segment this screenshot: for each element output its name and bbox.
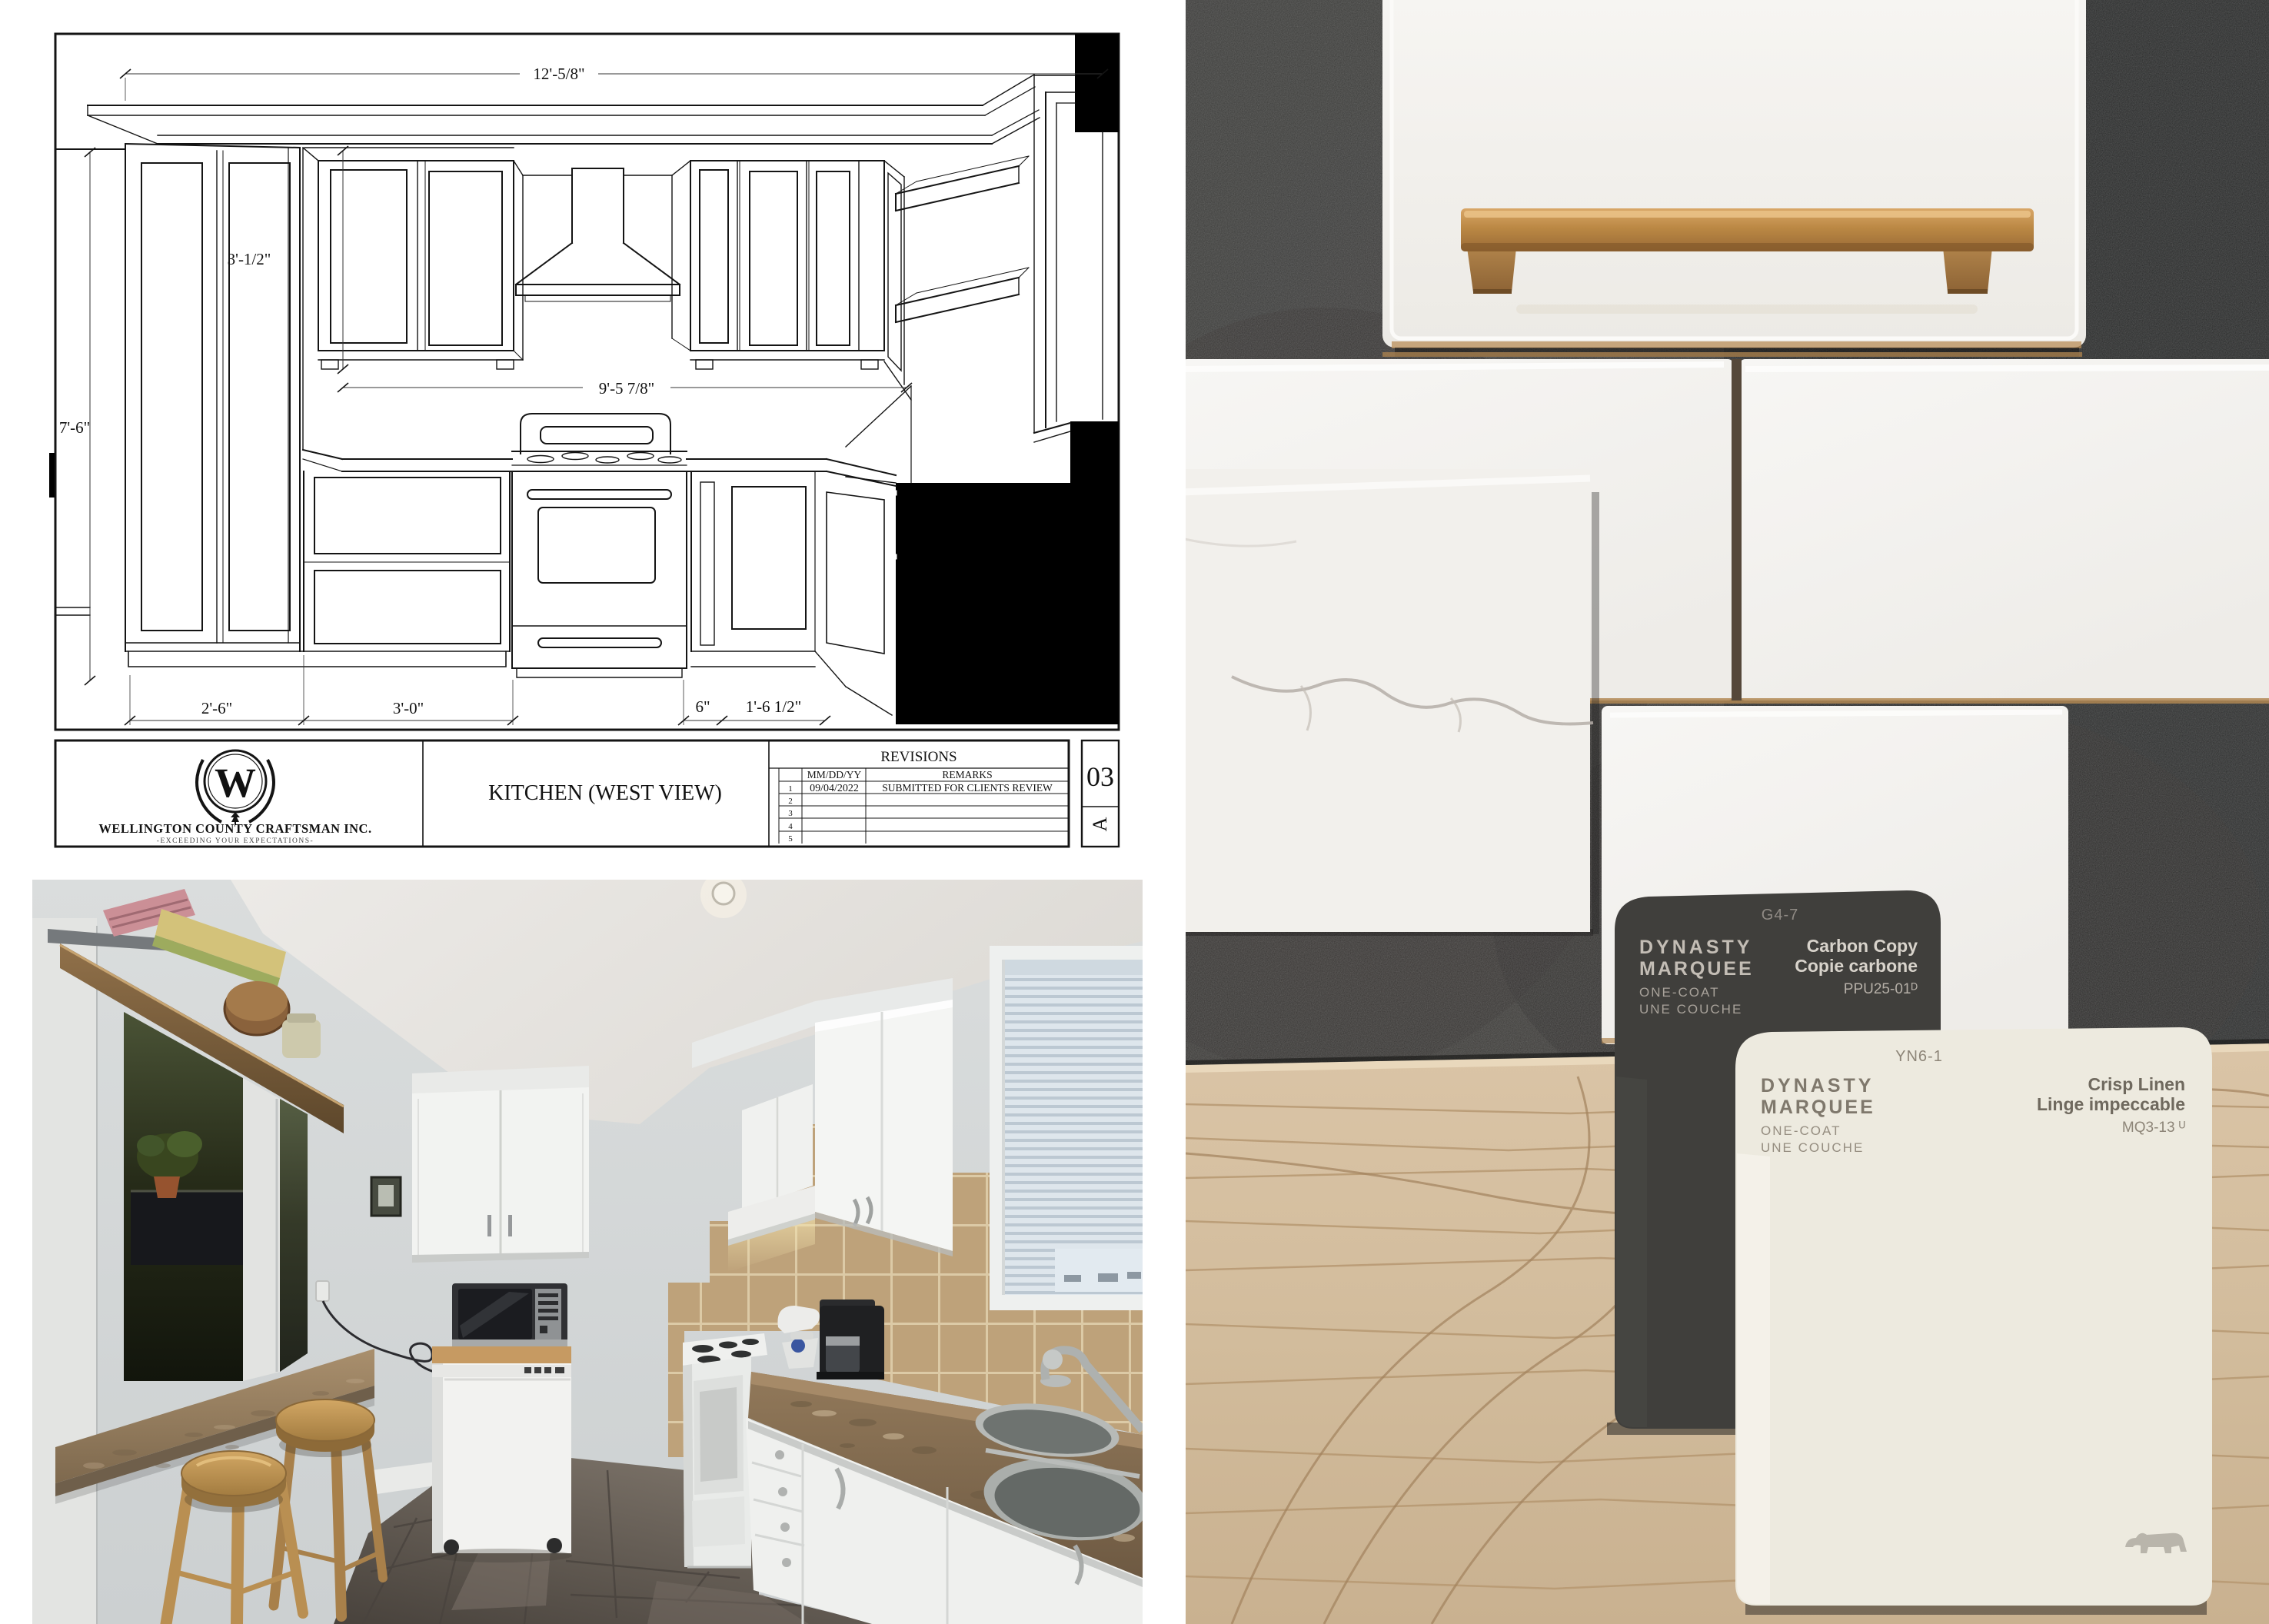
svg-text:Linge impeccable: Linge impeccable [2037, 1094, 2185, 1114]
svg-text:5: 5 [788, 834, 793, 844]
svg-text:YN6-1: YN6-1 [1895, 1048, 1943, 1065]
svg-text:MARQUEE: MARQUEE [1639, 958, 1754, 980]
svg-text:REMARKS: REMARKS [942, 769, 992, 780]
svg-text:3: 3 [788, 809, 793, 818]
svg-text:1: 1 [788, 784, 793, 794]
svg-text:DYNASTY: DYNASTY [1761, 1075, 1874, 1097]
svg-text:MARQUEE: MARQUEE [1761, 1097, 1875, 1118]
svg-text:MM/DD/YY: MM/DD/YY [807, 769, 862, 780]
svg-text:KITCHEN (WEST VIEW): KITCHEN (WEST VIEW) [488, 781, 722, 805]
svg-text:9'-5 7/8": 9'-5 7/8" [599, 379, 654, 398]
svg-text:03: 03 [1086, 761, 1114, 792]
svg-text:SUBMITTED FOR CLIENTS REVIEW: SUBMITTED FOR CLIENTS REVIEW [882, 782, 1053, 794]
svg-text:3'-1/2": 3'-1/2" [228, 250, 271, 268]
svg-text:MQ3-13 ᵁ: MQ3-13 ᵁ [2122, 1120, 2185, 1136]
svg-text:W: W [215, 760, 256, 806]
svg-text:WELLINGTON COUNTY CRAFTSMAN IN: WELLINGTON COUNTY CRAFTSMAN INC. [98, 821, 371, 836]
svg-text:Copie carbone: Copie carbone [1795, 956, 1918, 976]
svg-text:2: 2 [788, 797, 793, 806]
svg-text:1'-6 1/2": 1'-6 1/2" [746, 697, 801, 716]
svg-text:G4-7: G4-7 [1762, 907, 1798, 923]
svg-text:3'-0": 3'-0" [393, 699, 424, 717]
svg-text:7'-6": 7'-6" [59, 418, 90, 437]
svg-text:ONE-COAT: ONE-COAT [1639, 985, 1719, 1000]
svg-text:12'-5/8": 12'-5/8" [533, 65, 584, 83]
svg-text:6": 6" [695, 697, 710, 716]
svg-text:4: 4 [788, 822, 793, 831]
svg-text:Crisp Linen: Crisp Linen [2088, 1074, 2185, 1094]
svg-text:UNE COUCHE: UNE COUCHE [1639, 1002, 1742, 1017]
svg-text:PPU25-01ᴰ: PPU25-01ᴰ [1844, 981, 1918, 997]
svg-text:2'-6": 2'-6" [201, 699, 232, 717]
svg-text:REVISIONS: REVISIONS [880, 749, 957, 765]
svg-text:DYNASTY: DYNASTY [1639, 937, 1752, 958]
svg-text:ONE-COAT: ONE-COAT [1761, 1123, 1841, 1138]
svg-text:A: A [1089, 817, 1111, 831]
svg-text:UNE COUCHE: UNE COUCHE [1761, 1140, 1864, 1155]
svg-text:Carbon Copy: Carbon Copy [1807, 936, 1918, 956]
svg-text:09/04/2022: 09/04/2022 [810, 783, 859, 794]
svg-text:-EXCEEDING YOUR EXPECTATIONS-: -EXCEEDING YOUR EXPECTATIONS- [157, 837, 314, 845]
